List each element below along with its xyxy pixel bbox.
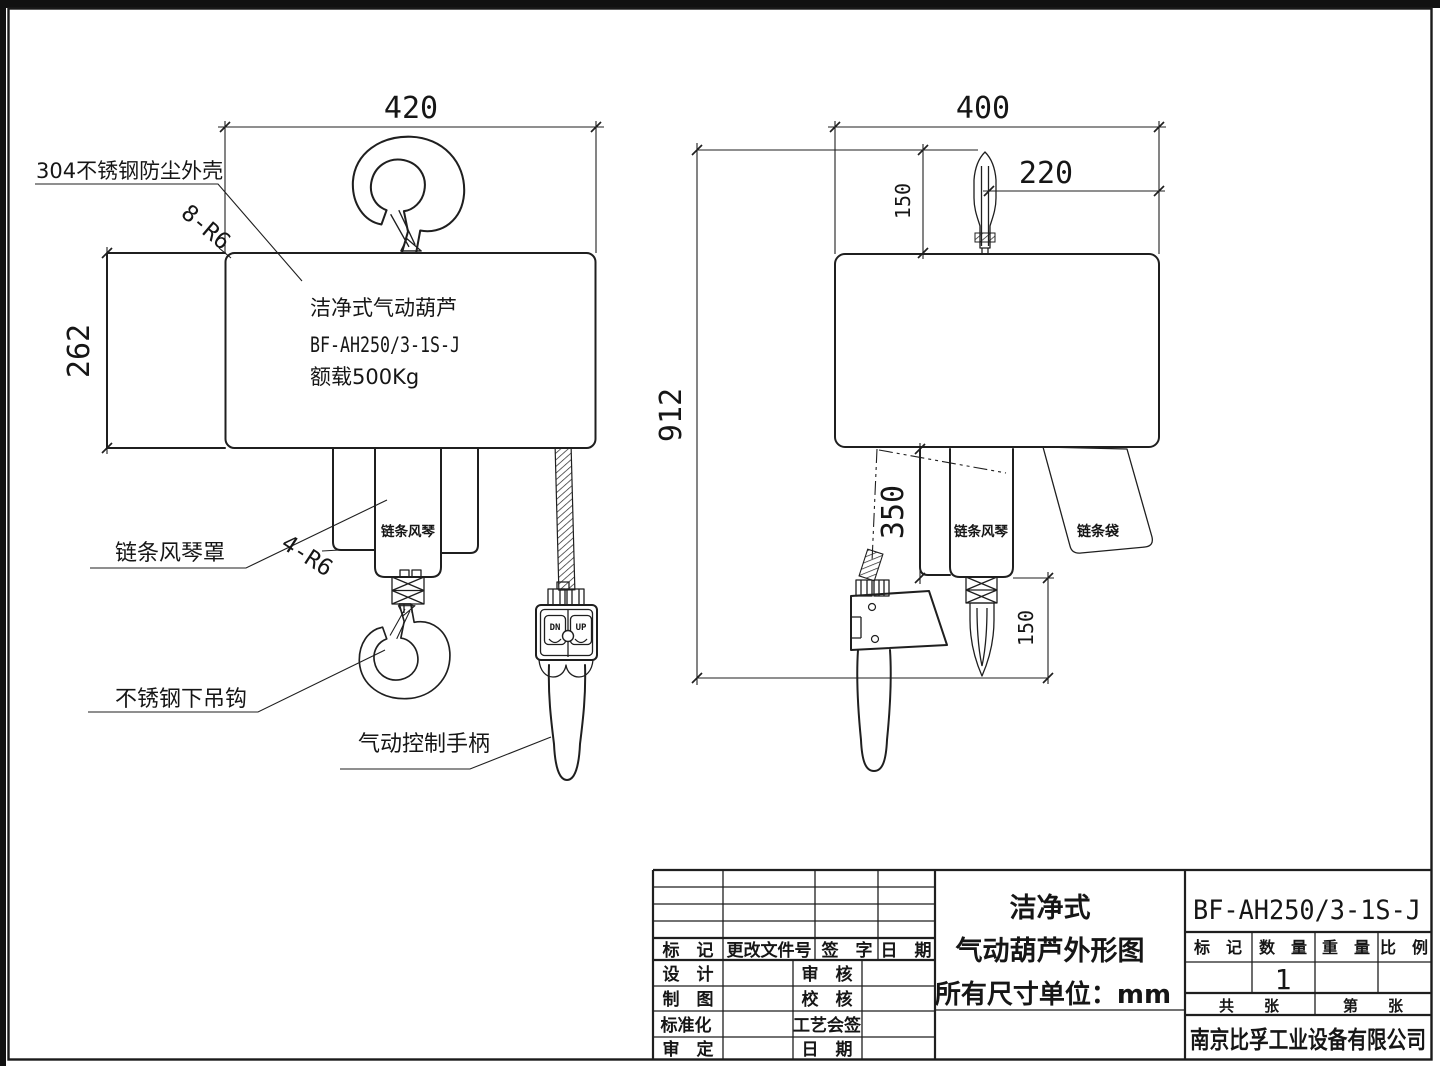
date-label: 日 期: [802, 1040, 853, 1060]
review-label: 审 核: [802, 964, 853, 985]
approve-label: 审 定: [663, 1039, 714, 1060]
side-dim-headroom-text: 350: [876, 485, 911, 539]
callout-housing: 304不锈钢防尘外壳: [35, 159, 302, 281]
front-bellows: 链条风琴: [333, 448, 478, 577]
side-dim-offset: 220: [983, 156, 1165, 196]
sheet-no-label: 第 张: [1343, 997, 1404, 1015]
side-hose-coil: [859, 549, 883, 581]
front-top-hook: [353, 137, 464, 253]
model-number: BF-AH250/3-1S-J: [1193, 895, 1421, 926]
side-top-hook: [974, 152, 996, 253]
front-chain-block: [392, 570, 424, 613]
rev-mark-label: 标 记: [663, 940, 714, 961]
side-pendant-head: [851, 591, 947, 650]
front-body-side-box: [107, 253, 225, 448]
side-dim-total-text: 912: [654, 388, 689, 442]
drawing-title-line3: 所有尺寸单位：mm: [935, 979, 1171, 1010]
side-body: [835, 254, 1159, 447]
pendant-grip: [549, 665, 585, 780]
side-dim-headroom: 350: [876, 443, 925, 584]
standardize-label: 标准化: [661, 1015, 712, 1036]
front-view: 420 262 洁净式气动葫芦 BF-AH250/3-1S-J 额载500Kg …: [35, 91, 604, 780]
col-qty-label: 数 量: [1259, 938, 1307, 957]
drawing-title: 洁净式 气动葫芦外形图 所有尺寸单位：mm: [935, 893, 1185, 1010]
front-dim-height: 262: [62, 247, 112, 454]
pendant-screw: [563, 631, 574, 642]
callout-bellows-cover-text: 链条风琴罩: [115, 541, 225, 566]
title-block: 标 记 更改文件号 签 字 日 期 设 计 审 核 制 图 校 核 标准化 工艺…: [653, 870, 1431, 1060]
corner-note-4r6-text: 4-R6: [277, 530, 338, 582]
spec-block: BF-AH250/3-1S-J 标 记 数 量 重 量 比 例 1 共 张 第 …: [1185, 895, 1431, 1054]
side-top-hook-latch: [975, 233, 995, 242]
side-dim-bottom-hook-text: 150: [1014, 610, 1038, 646]
side-bottom-hook: [970, 603, 994, 676]
side-dim-top-hook: 150: [891, 144, 928, 259]
col-scale-label: 比 例: [1380, 938, 1428, 957]
front-body-text3: 额载500Kg: [310, 365, 419, 389]
side-dim-bottom-hook: 150: [1013, 572, 1054, 684]
side-head-screw-top: [869, 604, 876, 611]
company-name: 南京比孚工业设备有限公司: [1190, 1026, 1426, 1054]
revision-table: 标 记 更改文件号 签 字 日 期 设 计 审 核 制 图 校 核 标准化 工艺…: [653, 870, 935, 1060]
side-head-screw-bottom: [872, 636, 879, 643]
corner-note-8r6-text: 8-R6: [176, 200, 235, 256]
callout-handle-text: 气动控制手柄: [358, 732, 490, 757]
qty-value: 1: [1275, 963, 1292, 996]
front-body-text2: BF-AH250/3-1S-J: [310, 333, 460, 357]
up-button-label: UP: [576, 623, 587, 633]
side-dim-width-text: 400: [956, 91, 1010, 126]
front-body: 洁净式气动葫芦 BF-AH250/3-1S-J 额载500Kg: [107, 253, 596, 448]
side-dim-offset-text: 220: [1019, 156, 1073, 191]
front-bellows-label: 链条风琴: [381, 523, 435, 540]
rev-date-label: 日 期: [881, 941, 932, 961]
border-top-bar: [0, 0, 1440, 8]
sheets-total-label: 共 张: [1219, 997, 1280, 1015]
air-hose-coil: [555, 448, 575, 590]
front-body-text1: 洁净式气动葫芦: [310, 296, 457, 320]
callout-lower-hook: 不锈钢下吊钩: [88, 650, 385, 712]
front-bottom-hook: [359, 604, 450, 699]
col-weight-label: 重 量: [1322, 938, 1370, 957]
side-dim-width: 400: [828, 91, 1166, 254]
drawing-title-line2: 气动葫芦外形图: [955, 936, 1145, 967]
chain-bag-label: 链条袋: [1077, 523, 1120, 540]
front-dim-width-text: 420: [384, 91, 438, 126]
draft-label: 制 图: [663, 989, 714, 1010]
rev-sign-label: 签 字: [821, 940, 873, 961]
side-dim-top-hook-text: 150: [891, 183, 915, 219]
engineering-drawing-page: 420 262 洁净式气动葫芦 BF-AH250/3-1S-J 额载500Kg …: [0, 0, 1440, 1066]
drawing-canvas: 420 262 洁净式气动葫芦 BF-AH250/3-1S-J 额载500Kg …: [0, 0, 1440, 1066]
side-pendant: [851, 549, 947, 771]
callout-handle: 气动控制手柄: [340, 732, 551, 769]
col-mark-label: 标 记: [1193, 938, 1242, 957]
front-dim-width: 420: [218, 91, 604, 253]
front-pendant: DN UP: [536, 448, 597, 780]
chain-bag: 链条袋: [1043, 447, 1152, 553]
side-bellows-label: 链条风琴: [954, 523, 1008, 540]
callout-lower-hook-text: 不锈钢下吊钩: [115, 687, 247, 712]
proof-label: 校 核: [802, 989, 853, 1010]
down-button-label: DN: [550, 623, 561, 633]
corner-note-8r6: 8-R6: [176, 200, 235, 258]
process-sign-label: 工艺会签: [793, 1015, 862, 1036]
design-label: 设 计: [663, 964, 714, 985]
callout-bellows-cover: 链条风琴罩: [90, 500, 387, 568]
side-bellows: 链条风琴: [920, 449, 1013, 577]
border-left-bar: [0, 0, 6, 1066]
side-chain-block: [966, 577, 997, 603]
callout-housing-text: 304不锈钢防尘外壳: [36, 159, 223, 183]
drawing-title-line1: 洁净式: [1010, 893, 1091, 924]
front-dim-height-text: 262: [62, 324, 97, 378]
side-view: 912 400 150 220: [654, 91, 1166, 771]
rev-doc-label: 更改文件号: [727, 940, 812, 961]
side-pendant-grip: [857, 650, 891, 771]
